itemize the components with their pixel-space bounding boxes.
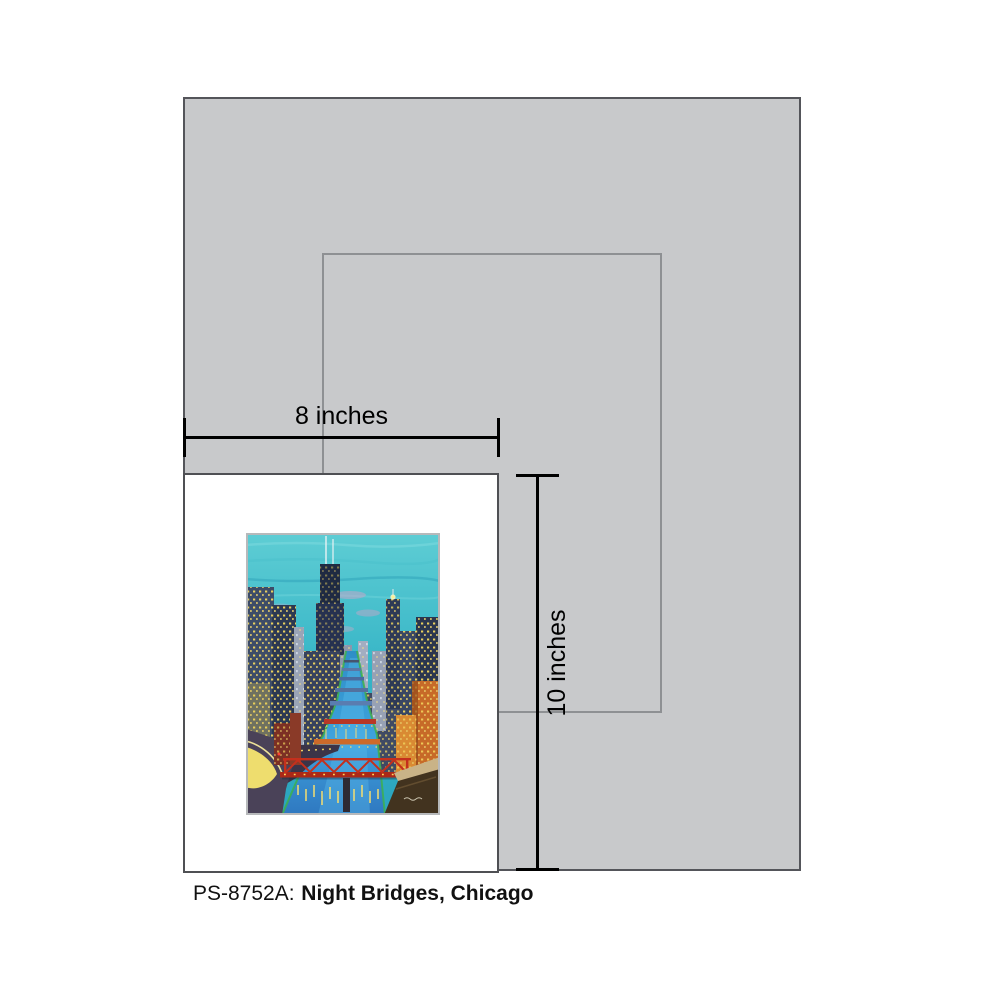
width-dimension-line bbox=[183, 436, 500, 439]
caption-title: Night Bridges, Chicago bbox=[301, 882, 533, 905]
width-dimension-left-tick bbox=[183, 418, 186, 457]
width-dimension-right-tick bbox=[497, 418, 500, 457]
height-dimension-bottom-tick bbox=[516, 868, 559, 871]
print-size-diagram: 8 inches 10 inches PS-8752A:Night Bridge… bbox=[0, 0, 984, 984]
caption-sku: PS-8752A: bbox=[193, 882, 295, 905]
height-dimension-line bbox=[536, 476, 539, 871]
height-dimension-top-tick bbox=[516, 474, 559, 477]
artwork-night-bridges-chicago bbox=[246, 533, 440, 815]
caption: PS-8752A:Night Bridges, Chicago bbox=[193, 882, 533, 906]
width-dimension-label: 8 inches bbox=[183, 402, 500, 431]
height-dimension-label: 10 inches bbox=[544, 593, 570, 733]
